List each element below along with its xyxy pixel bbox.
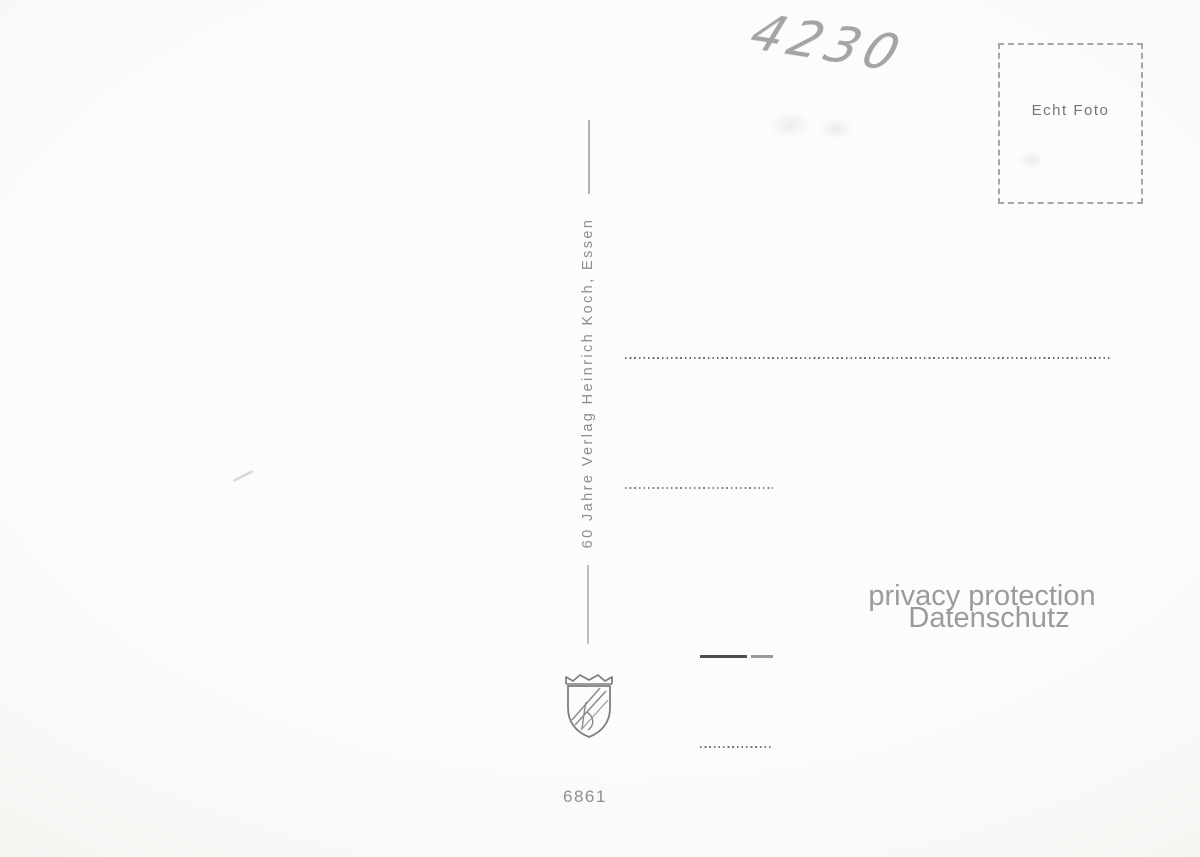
postcard-back-scan: 4230 Echt Foto 60 Jahre Verlag Heinrich …	[0, 0, 1200, 857]
address-dotted-line-1	[625, 357, 1110, 359]
pencil-tick-mark	[233, 470, 254, 482]
handwritten-postal-code: 4230	[742, 3, 913, 82]
address-solid-line	[700, 655, 773, 658]
address-dotted-line-3	[700, 746, 772, 748]
scan-smudge	[818, 118, 854, 140]
serial-number: 6861	[563, 787, 607, 807]
divider-line-bottom	[587, 565, 589, 644]
publisher-imprint-vertical: 60 Jahre Verlag Heinrich Koch, Essen	[580, 218, 596, 549]
echt-foto-label: Echt Foto	[1032, 102, 1110, 119]
publisher-crest-icon	[558, 672, 620, 742]
divider-line-top	[588, 120, 590, 194]
address-dotted-line-2	[625, 487, 773, 489]
stamp-box: Echt Foto	[998, 43, 1143, 204]
privacy-watermark: privacy protection Datenschutz	[842, 585, 1122, 629]
scan-smudge	[768, 112, 812, 138]
